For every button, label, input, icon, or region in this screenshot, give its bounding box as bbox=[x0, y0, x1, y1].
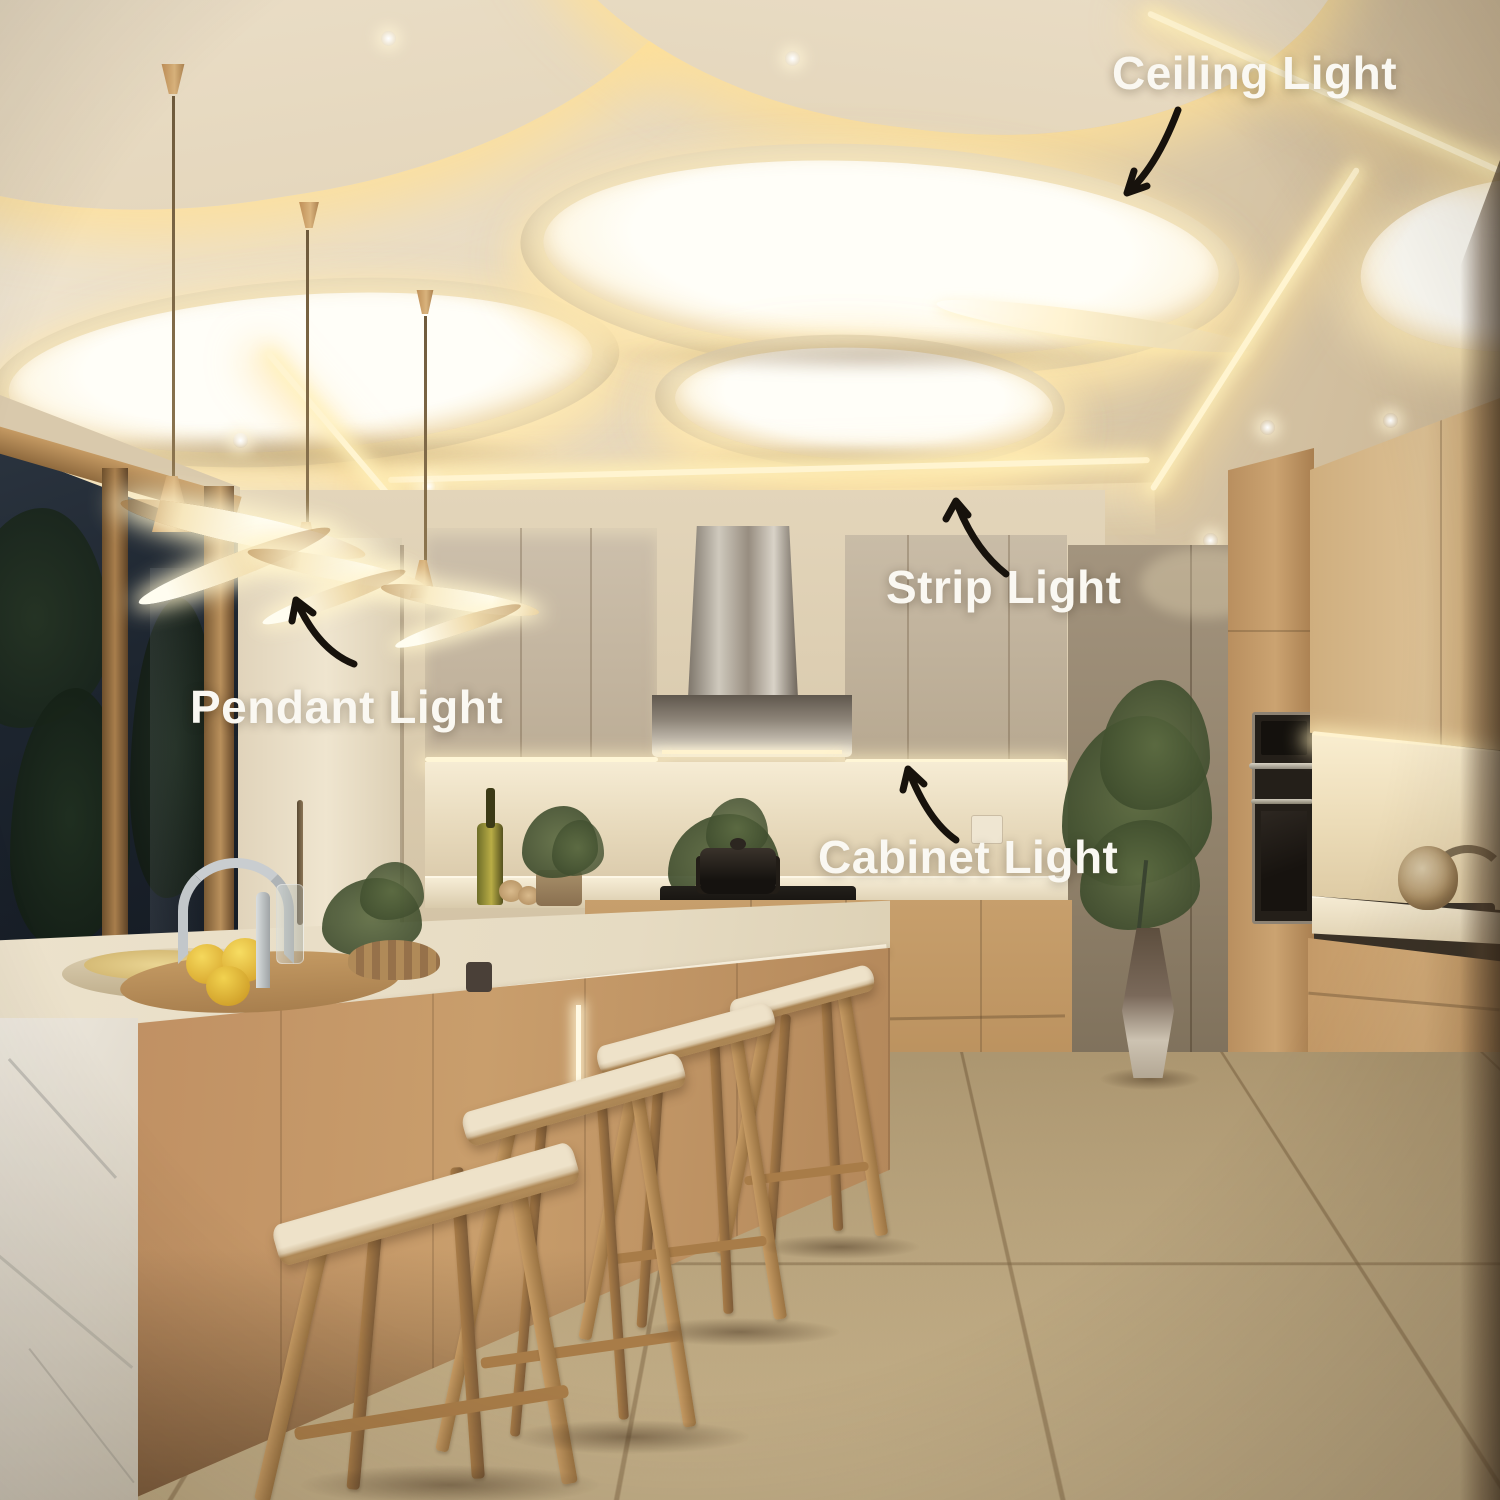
oven-glass bbox=[1261, 811, 1307, 911]
oven-handle bbox=[1251, 799, 1313, 804]
annotation-label-strip-light: Strip Light bbox=[886, 562, 1121, 613]
stool-shadow bbox=[760, 1235, 920, 1259]
stool-shadow bbox=[300, 1465, 600, 1500]
pot-lid-knob bbox=[730, 838, 746, 850]
recessed-downlight bbox=[1260, 420, 1275, 435]
range-hood bbox=[652, 695, 852, 757]
annotation-label-cabinet-light: Cabinet Light bbox=[818, 832, 1118, 883]
wall-oven bbox=[1252, 712, 1316, 924]
pendant-cord bbox=[306, 230, 309, 528]
pendant-cord bbox=[172, 96, 175, 484]
stool-shadow bbox=[510, 1420, 750, 1454]
right-wall-edge bbox=[1460, 160, 1500, 1500]
oven-display bbox=[1261, 721, 1307, 755]
shadow bbox=[600, 336, 1140, 374]
recessed-downlight bbox=[233, 433, 248, 448]
recessed-downlight bbox=[1383, 413, 1398, 428]
cooking-pot bbox=[700, 848, 776, 894]
range-hood-chimney bbox=[688, 526, 798, 698]
island-faucet-post bbox=[256, 892, 270, 988]
woven-basket bbox=[348, 940, 440, 980]
lemon bbox=[206, 966, 250, 1006]
island-marble-panel bbox=[0, 1018, 138, 1500]
spice-jar bbox=[466, 962, 492, 992]
oil-bottle-neck bbox=[486, 788, 495, 828]
oven-handle bbox=[1249, 763, 1315, 769]
pendant-cord bbox=[424, 316, 427, 566]
marble-vein bbox=[0, 1238, 133, 1369]
hood-task-light bbox=[662, 750, 842, 754]
recessed-downlight bbox=[785, 51, 800, 66]
annotation-label-pendant-light: Pendant Light bbox=[190, 682, 503, 733]
annotation-label-ceiling-light: Ceiling Light bbox=[1112, 48, 1397, 99]
glass-shaker bbox=[276, 884, 304, 964]
marble-vein bbox=[28, 1348, 134, 1483]
recessed-downlight bbox=[381, 31, 396, 46]
floor-light-reflection bbox=[820, 1300, 1240, 1470]
stool-shadow bbox=[640, 1318, 840, 1346]
annotated-kitchen-photo: Ceiling Light Strip Light Pendant Light … bbox=[0, 0, 1500, 1500]
decorative-vase bbox=[1398, 846, 1458, 910]
marble-vein bbox=[8, 1058, 117, 1179]
